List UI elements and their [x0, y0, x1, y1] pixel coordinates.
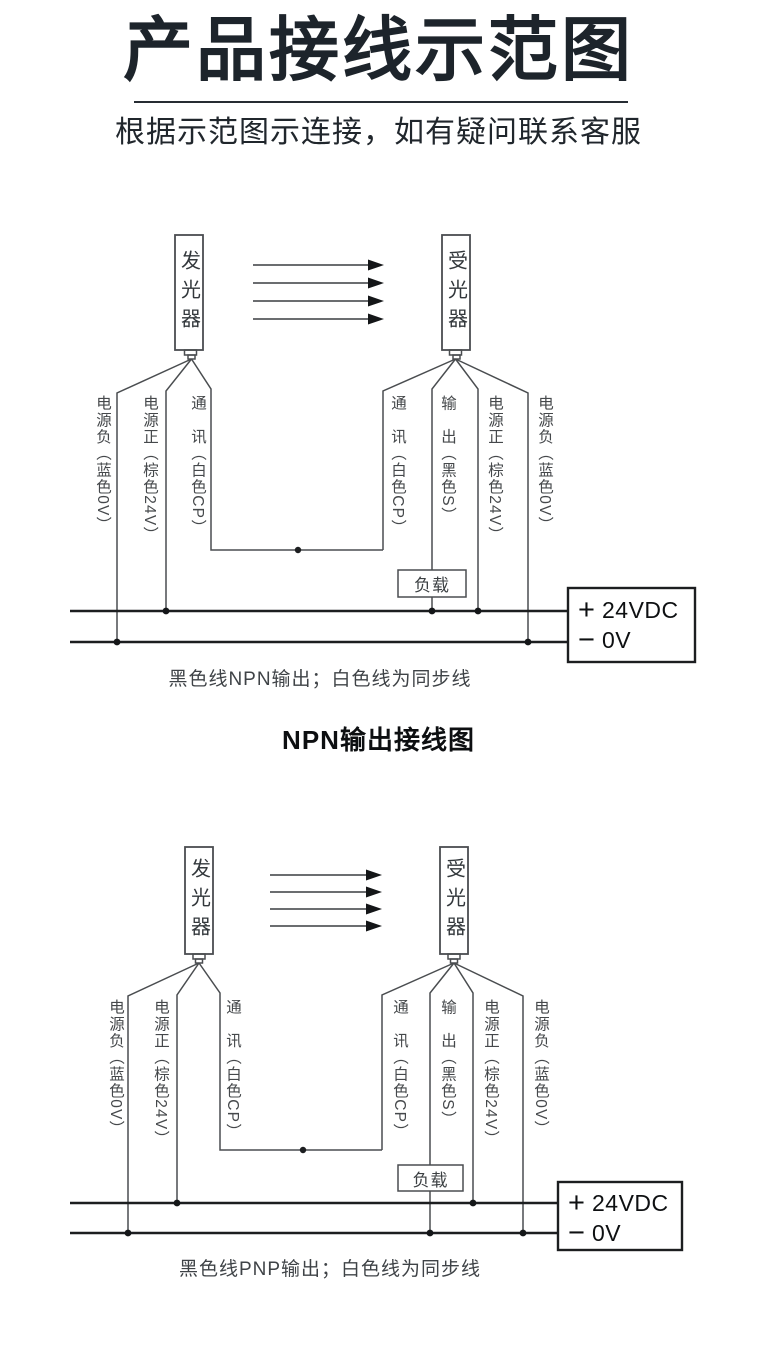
npn-label-comm-left: 通 讯（白色CP） — [187, 395, 207, 536]
npn-emitter-label: 发光器 — [175, 237, 203, 349]
plus-terminal-icon: + — [578, 595, 602, 625]
npn-load-label: 负载 — [398, 570, 466, 597]
pnp-label-output: 输 出（黑色S） — [437, 999, 457, 1127]
pnp-caption: 黑色线PNP输出；白色线为同步线 — [30, 1254, 630, 1281]
npn-arrowheads — [368, 260, 384, 325]
pnp-psu-terminals: + 24VDC − 0V — [558, 1182, 682, 1250]
pnp-bus-junction-dots — [125, 1200, 527, 1237]
psu-voltage-value: 24VDC — [602, 597, 679, 624]
pnp-load-label: 负载 — [398, 1165, 463, 1191]
npn-label-power-positive-right: 电源正（棕色24V） — [484, 395, 504, 543]
npn-label-power-negative-left: 电源负（蓝色0V） — [92, 395, 112, 533]
pnp-sync-junction-dot — [300, 1147, 306, 1153]
pnp-receiver-label: 受光器 — [440, 849, 468, 953]
npn-label-power-negative-right: 电源负（蓝色0V） — [534, 395, 554, 533]
pnp-light-beam-arrows — [270, 875, 366, 926]
npn-sync-junction-dot — [295, 547, 301, 553]
minus-terminal-icon: − — [578, 625, 602, 655]
minus-terminal-icon: − — [568, 1218, 592, 1248]
npn-label-power-positive-left: 电源正（棕色24V） — [139, 395, 159, 543]
npn-psu-terminals: + 24VDC − 0V — [568, 588, 695, 662]
npn-bus-junction-dots — [114, 608, 532, 646]
psu-zero-value: 0V — [592, 1220, 621, 1247]
product-wiring-page: 产品接线示范图 根据示范图示连接，如有疑问联系客服 — [0, 0, 757, 1360]
pnp-arrowheads — [366, 870, 382, 932]
npn-label-comm-right: 通 讯（白色CP） — [387, 395, 407, 536]
pnp-label-power-positive-left: 电源正（棕色24V） — [150, 999, 170, 1147]
psu-zero-value: 0V — [602, 627, 631, 654]
plus-terminal-icon: + — [568, 1188, 592, 1218]
pnp-label-power-negative-left: 电源负（蓝色0V） — [105, 999, 125, 1137]
npn-diagram-title: NPN输出接线图 — [0, 720, 757, 757]
pnp-label-power-negative-right: 电源负（蓝色0V） — [530, 999, 550, 1137]
npn-receiver-label: 受光器 — [442, 237, 470, 349]
pnp-emitter-label: 发光器 — [185, 849, 213, 953]
psu-voltage-value: 24VDC — [592, 1190, 669, 1217]
npn-light-beam-arrows — [253, 265, 368, 319]
npn-wire-comm-left — [192, 359, 384, 550]
npn-caption: 黑色线NPN输出；白色线为同步线 — [20, 664, 620, 691]
pnp-wire-power-positive-left — [177, 963, 199, 1203]
npn-psu-minus-row: − 0V — [578, 625, 695, 655]
pnp-psu-plus-row: + 24VDC — [568, 1188, 682, 1218]
pnp-psu-minus-row: − 0V — [568, 1218, 682, 1248]
npn-psu-plus-row: + 24VDC — [578, 595, 695, 625]
pnp-label-power-positive-right: 电源正（棕色24V） — [480, 999, 500, 1147]
pnp-label-comm-left: 通 讯（白色CP） — [222, 999, 242, 1140]
npn-label-output: 输 出（黑色S） — [437, 395, 457, 523]
pnp-label-comm-right: 通 讯（白色CP） — [389, 999, 409, 1140]
